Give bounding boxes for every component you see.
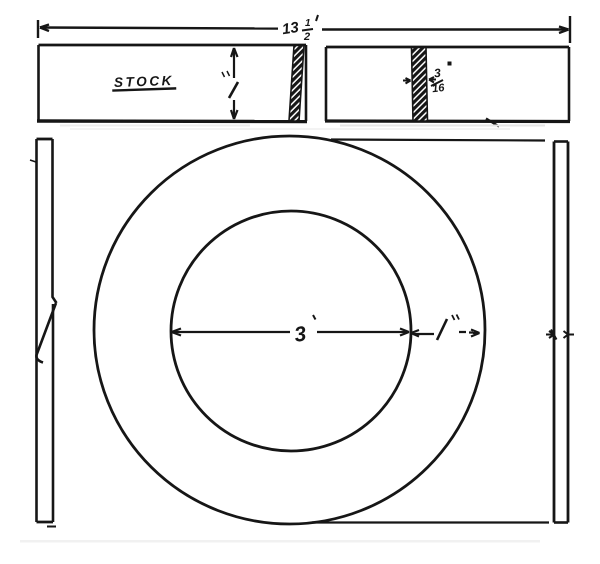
svg-text:13: 13 <box>281 19 301 38</box>
svg-text:2: 2 <box>303 31 310 43</box>
svg-text:1: 1 <box>305 18 311 29</box>
svg-text:STOCK: STOCK <box>114 73 175 90</box>
svg-text:16: 16 <box>432 82 446 95</box>
